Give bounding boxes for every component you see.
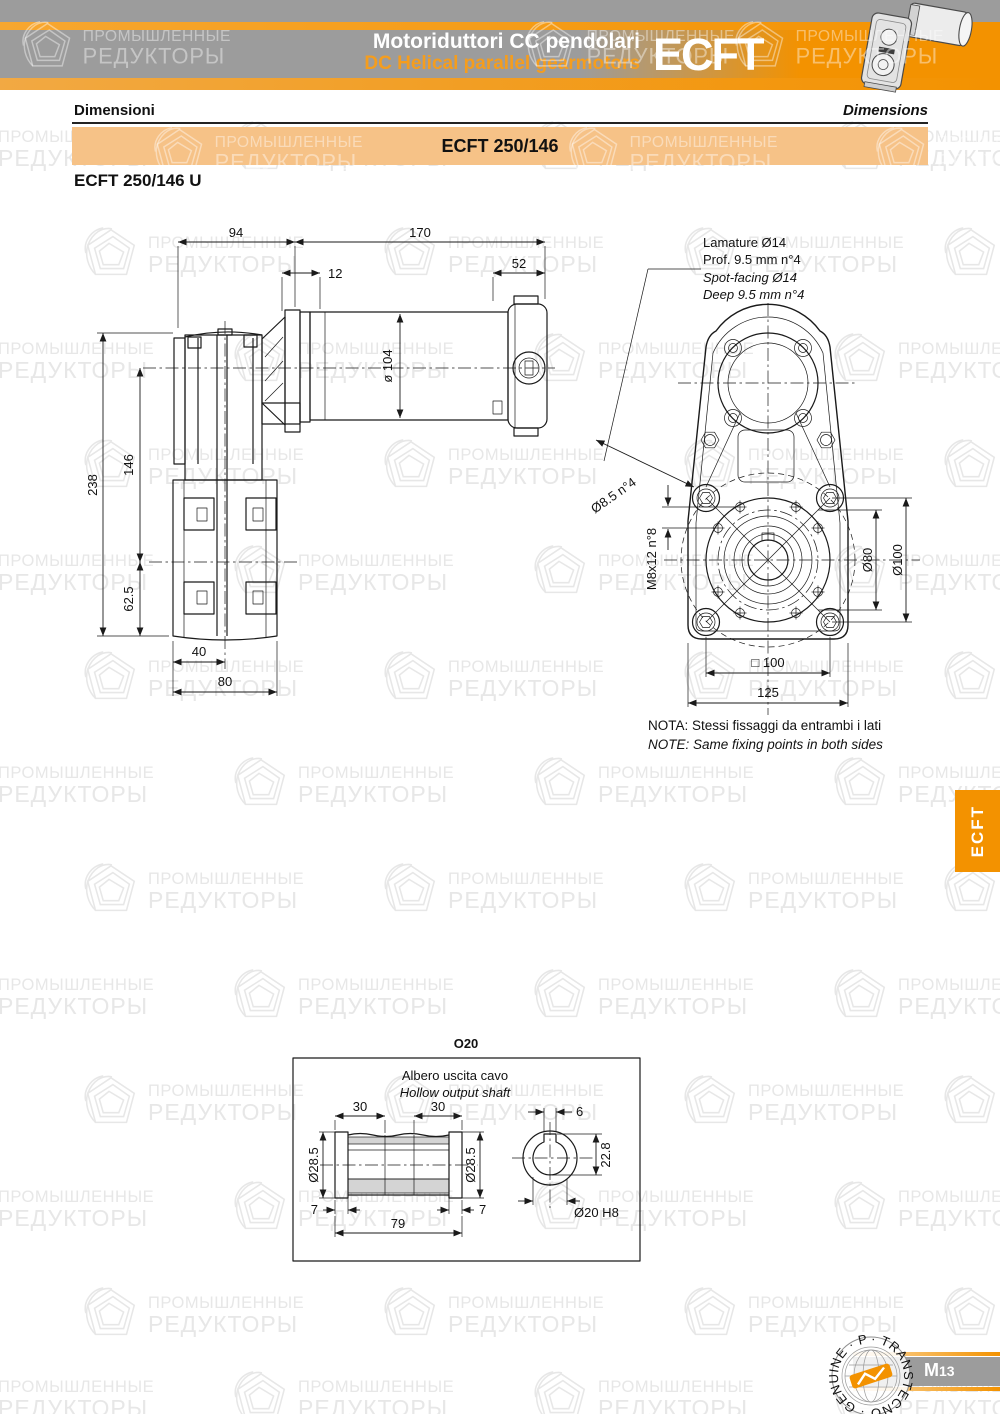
watermark-line2: РЕДУКТОРЫ bbox=[898, 994, 1000, 1018]
watermark-line2: РЕДУКТОРЫ bbox=[937, 151, 1000, 174]
watermark-line1: ПРОМЫШЛЕННЫЕ bbox=[148, 1082, 304, 1100]
dim-overall-height: 238 bbox=[85, 474, 100, 496]
brand-logo: ECFT bbox=[653, 32, 763, 77]
section-label-it: Dimensioni bbox=[74, 102, 155, 119]
watermark-line1: ПРОМЫШЛЕННЫЕ bbox=[298, 1378, 454, 1396]
note-lamature-en2: Deep 9.5 mm n°4 bbox=[703, 287, 804, 302]
watermark: ПРОМЫШЛЕННЫЕРЕДУКТОРЫ bbox=[940, 1072, 1000, 1134]
watermark-line2: РЕДУКТОРЫ bbox=[148, 888, 304, 912]
dim-hub-diameter: Ø100 bbox=[890, 544, 905, 576]
option-caption-en: Hollow output shaft bbox=[400, 1085, 512, 1100]
watermark-line2: РЕДУКТОРЫ bbox=[748, 1100, 904, 1124]
watermark: ПРОМЫШЛЕННЫЕРЕДУКТОРЫ bbox=[680, 1072, 904, 1134]
watermark: ПРОМЫШЛЕННЫЕРЕДУКТОРЫ bbox=[940, 1284, 1000, 1346]
watermark-line2: РЕДУКТОРЫ bbox=[448, 1312, 604, 1336]
watermark-line1: ПРОМЫШЛЕННЫЕ bbox=[748, 1082, 904, 1100]
watermark-line1: ПРОМЫШЛЕННЫЕ bbox=[298, 976, 454, 994]
watermark-line1: ПРОМЫШЛЕННЫЕ bbox=[598, 764, 754, 782]
side-view-dimensions: 94 170 12 52 ø 104 238 146 62.5 40 bbox=[85, 225, 545, 696]
dim-shaft-offset: 40 bbox=[192, 644, 206, 659]
dim-housing-width: 80 bbox=[218, 674, 232, 689]
watermark-line1: ПРОМЫШЛЕННЫЕ bbox=[448, 870, 604, 888]
watermark: ПРОМЫШЛЕННЫЕРЕДУКТОРЫ bbox=[680, 860, 904, 922]
watermark-line2: РЕДУКТОРЫ bbox=[0, 994, 154, 1018]
watermark-line1: ПРОМЫШЛЕННЫЕ bbox=[937, 134, 1000, 151]
watermark-line1: ПРОМЫШЛЕННЫЕ bbox=[298, 764, 454, 782]
watermark-line2: РЕДУКТОРЫ bbox=[898, 1396, 1000, 1414]
watermark-line2: РЕДУКТОРЫ bbox=[598, 1396, 754, 1414]
note-lamature-en1: Spot-facing Ø14 bbox=[703, 270, 797, 285]
side-tab-label: ECFT bbox=[968, 805, 988, 857]
watermark-line2: РЕДУКТОРЫ bbox=[298, 782, 454, 806]
note-block: NOTA: Stessi fissaggi da entrambi i lati… bbox=[648, 716, 883, 754]
dim-right-depth: 30 bbox=[431, 1099, 445, 1114]
watermark-line2: РЕДУКТОРЫ bbox=[598, 994, 754, 1018]
watermark-line2: РЕДУКТОРЫ bbox=[598, 782, 754, 806]
header-orange-stripe bbox=[0, 22, 1000, 30]
watermark: ПРОМЫШЛЕННЫЕРЕДУКТОРЫ bbox=[530, 1368, 754, 1414]
dim-cap-length: 52 bbox=[512, 256, 526, 271]
header-bottom-stripe bbox=[0, 78, 1000, 90]
watermark-line2: РЕДУКТОРЫ bbox=[0, 1396, 154, 1414]
watermark-line2: РЕДУКТОРЫ bbox=[148, 1312, 304, 1336]
watermark: ПРОМЫШЛЕННЫЕРЕДУКТОРЫ bbox=[0, 1178, 154, 1240]
watermark-line2: РЕДУКТОРЫ bbox=[0, 782, 154, 806]
watermark: ПРОМЫШЛЕННЫЕРЕДУКТОРЫ bbox=[80, 1284, 304, 1346]
spot-facing-note: Lamature Ø14 Prof. 9.5 mm n°4 Spot-facin… bbox=[604, 235, 804, 461]
dim-right-gap: 7 bbox=[479, 1202, 486, 1217]
watermark: ПРОМЫШЛЕННЫЕРЕДУКТОРЫ bbox=[0, 966, 154, 1028]
hollow-shaft-end-view: 6 22.8 Ø20 H8 bbox=[512, 1104, 619, 1220]
dim-motor-diameter: ø 104 bbox=[380, 349, 395, 382]
watermark-line1: ПРОМЫШЛЕННЫЕ bbox=[748, 1294, 904, 1312]
watermark: ПРОМЫШЛЕННЫЕРЕДУКТОРЫ bbox=[230, 754, 454, 816]
watermark-line2: РЕДУКТОРЫ bbox=[0, 1206, 154, 1230]
watermark: ПРОМЫШЛЕННЫЕРЕДУКТОРЫ bbox=[380, 860, 604, 922]
dim-key-height: 22.8 bbox=[598, 1142, 613, 1167]
watermark-line1: ПРОМЫШЛЕННЫЕ bbox=[0, 976, 154, 994]
watermark: ПРОМЫШЛЕННЫЕРЕДУКТОРЫ bbox=[80, 860, 304, 922]
dim-bore-left: Ø28.5 bbox=[306, 1147, 321, 1182]
section-rule bbox=[72, 122, 928, 124]
model-banner: ECFT 250/146 bbox=[72, 127, 928, 165]
watermark-line2: РЕДУКТОРЫ bbox=[298, 1396, 454, 1414]
dim-total-length: 79 bbox=[391, 1216, 405, 1231]
watermark: ПРОМЫШЛЕННЫЕРЕДУКТОРЫ bbox=[830, 1178, 1000, 1240]
watermark-line2: РЕДУКТОРЫ bbox=[898, 1206, 1000, 1230]
note-en: NOTE: Same fixing points in both sides bbox=[648, 735, 883, 754]
front-view-drawing: Lamature Ø14 Prof. 9.5 mm n°4 Spot-facin… bbox=[580, 225, 960, 730]
dim-lower-height: 62.5 bbox=[121, 586, 136, 611]
watermark-line1: ПРОМЫШЛЕННЫЕ bbox=[0, 1188, 154, 1206]
watermark-line1: ПРОМЫШЛЕННЫЕ bbox=[0, 1378, 154, 1396]
dim-bore-fit: Ø20 H8 bbox=[574, 1205, 619, 1220]
dim-tapped-holes: M8x12 n°8 bbox=[644, 528, 659, 590]
dim-square: □ 100 bbox=[751, 655, 784, 670]
page-header: Motoriduttori CC pendolari DC Helical pa… bbox=[0, 0, 1000, 90]
transtecno-stamp: · TRANSTECNO · GENUINE · PRODUCTS bbox=[829, 1334, 913, 1414]
gearmotor-3d-icon bbox=[856, 0, 1000, 98]
page-number: M13 bbox=[924, 1360, 955, 1381]
side-tab-ecft: ECFT bbox=[955, 790, 1000, 872]
watermark-line2: РЕДУКТОРЫ bbox=[448, 888, 604, 912]
dim-bore-right: Ø28.5 bbox=[463, 1147, 478, 1182]
page-letter: M bbox=[924, 1360, 939, 1380]
variant-title: ECFT 250/146 U bbox=[74, 171, 202, 191]
watermark-line2: РЕДУКТОРЫ bbox=[148, 1100, 304, 1124]
note-lamature-it2: Prof. 9.5 mm n°4 bbox=[703, 252, 801, 267]
watermark: ПРОМЫШЛЕННЫЕРЕДУКТОРЫ bbox=[80, 1072, 304, 1134]
dim-motor-length: 170 bbox=[409, 225, 431, 240]
note-it: NOTA: Stessi fissaggi da entrambi i lati bbox=[648, 716, 883, 735]
dim-gearbox-width: 94 bbox=[229, 225, 243, 240]
option-caption-it: Albero uscita cavo bbox=[402, 1068, 508, 1083]
side-view-outline bbox=[173, 296, 547, 640]
dim-bolt-circle: Ø80 bbox=[860, 548, 875, 573]
dim-left-depth: 30 bbox=[353, 1099, 367, 1114]
section-label-en: Dimensions bbox=[843, 102, 928, 119]
watermark-line1: ПРОМЫШЛЕННЫЕ bbox=[148, 1294, 304, 1312]
watermark: ПРОМЫШЛЕННЫЕРЕДУКТОРЫ bbox=[230, 1368, 454, 1414]
hollow-shaft-section: 30 30 Ø28.5 Ø28.5 7 7 bbox=[306, 1099, 486, 1237]
header-title-italian: Motoriduttori CC pendolari bbox=[373, 30, 640, 54]
watermark: ПРОМЫШЛЕННЫЕРЕДУКТОРЫ bbox=[530, 966, 754, 1028]
watermark-line2: РЕДУКТОРЫ bbox=[748, 888, 904, 912]
side-view-drawing: 94 170 12 52 ø 104 238 146 62.5 40 bbox=[85, 225, 565, 725]
watermark-line1: ПРОМЫШЛЕННЫЕ bbox=[598, 1378, 754, 1396]
watermark-line1: ПРОМЫШЛЕННЫЕ bbox=[598, 976, 754, 994]
watermark: ПРОМЫШЛЕННЫЕРЕДУКТОРЫ bbox=[0, 754, 154, 816]
datasheet-page: ПРОМЫШЛЕННЫЕРЕДУКТОРЫПРОМЫШЛЕННЫЕРЕДУКТО… bbox=[0, 0, 1000, 1414]
watermark-line2: РЕДУКТОРЫ bbox=[748, 1312, 904, 1336]
watermark-line1: ПРОМЫШЛЕННЫЕ bbox=[898, 976, 1000, 994]
watermark-line2: РЕДУКТОРЫ bbox=[298, 994, 454, 1018]
dim-axis-distance: 146 bbox=[121, 454, 136, 476]
watermark: ПРОМЫШЛЕННЫЕРЕДУКТОРЫ bbox=[0, 1368, 154, 1414]
watermark: ПРОМЫШЛЕННЫЕРЕДУКТОРЫ bbox=[530, 754, 754, 816]
watermark-line1: ПРОМЫШЛЕННЫЕ bbox=[748, 870, 904, 888]
dim-left-gap: 7 bbox=[311, 1202, 318, 1217]
watermark-line1: ПРОМЫШЛЕННЫЕ bbox=[0, 764, 154, 782]
watermark-line1: ПРОМЫШЛЕННЫЕ bbox=[448, 1294, 604, 1312]
note-lamature-it1: Lamature Ø14 bbox=[703, 235, 786, 250]
watermark-line1: ПРОМЫШЛЕННЫЕ bbox=[898, 1188, 1000, 1206]
dim-flange-offset: 12 bbox=[328, 266, 342, 281]
front-view-dimensions: Ø8.5 n°4 M8x12 n°8 Ø80 Ø100 □ 100 125 bbox=[588, 440, 912, 707]
watermark: ПРОМЫШЛЕННЫЕРЕДУКТОРЫ bbox=[830, 966, 1000, 1028]
watermark-line1: ПРОМЫШЛЕННЫЕ bbox=[898, 764, 1000, 782]
dim-through-holes: Ø8.5 n°4 bbox=[588, 474, 639, 516]
watermark: ПРОМЫШЛЕННЫЕРЕДУКТОРЫ bbox=[380, 1284, 604, 1346]
option-o20-drawing: O20 Albero uscita cavo Hollow output sha… bbox=[290, 1028, 650, 1273]
page-num: 13 bbox=[939, 1363, 955, 1379]
option-code: O20 bbox=[454, 1036, 479, 1051]
dim-key-width: 6 bbox=[576, 1104, 583, 1119]
watermark: ПРОМЫШЛЕННЫЕРЕДУКТОРЫ bbox=[230, 966, 454, 1028]
dim-overall-width: 125 bbox=[757, 685, 779, 700]
watermark-line1: ПРОМЫШЛЕННЫЕ bbox=[148, 870, 304, 888]
header-title-english: DC Helical parallel gearmotors bbox=[364, 53, 640, 75]
